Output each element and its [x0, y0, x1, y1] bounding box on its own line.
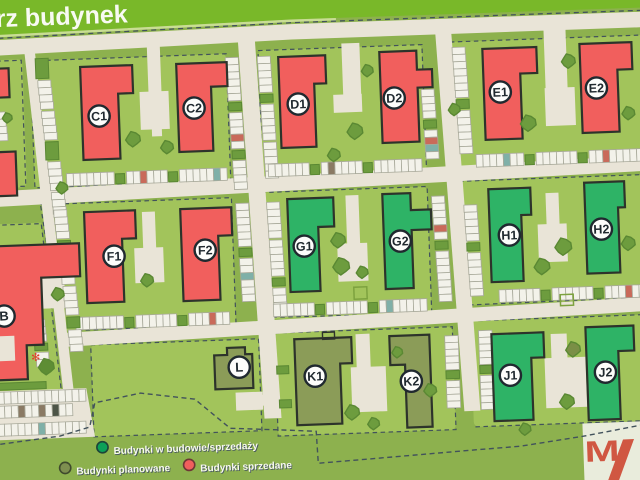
svg-text:H1: H1	[501, 228, 518, 243]
svg-text:J1: J1	[503, 368, 517, 383]
svg-text:✻: ✻	[31, 352, 41, 364]
svg-text:E2: E2	[589, 81, 605, 96]
svg-text:D1: D1	[290, 97, 307, 112]
svg-text:K2: K2	[403, 374, 420, 389]
svg-text:C2: C2	[186, 101, 203, 116]
svg-text:C1: C1	[91, 109, 108, 124]
svg-text:F1: F1	[107, 249, 122, 264]
svg-text:B: B	[0, 308, 9, 323]
svg-text:L: L	[235, 359, 244, 374]
svg-text:K1: K1	[307, 369, 324, 384]
svg-text:H2: H2	[593, 222, 610, 237]
svg-text:F2: F2	[198, 243, 213, 258]
svg-text:D2: D2	[386, 91, 403, 106]
svg-text:J2: J2	[598, 365, 612, 380]
svg-text:G1: G1	[296, 239, 313, 254]
svg-text:G2: G2	[392, 234, 409, 249]
svg-text:rz budynek: rz budynek	[0, 0, 128, 33]
svg-text:E1: E1	[492, 85, 508, 100]
